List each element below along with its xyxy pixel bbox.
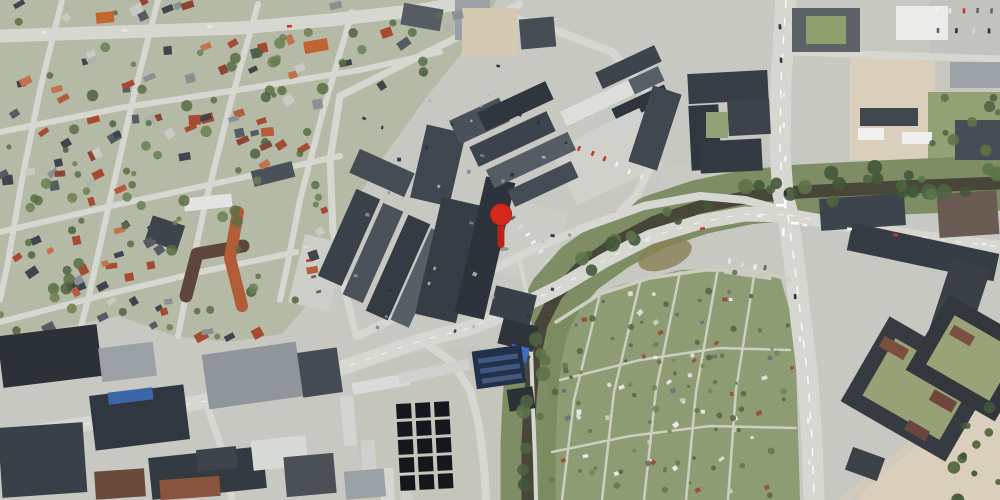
map-viewport[interactable]: [0, 0, 1000, 500]
satellite-imagery[interactable]: [0, 0, 1000, 500]
pin-head: [490, 204, 512, 226]
